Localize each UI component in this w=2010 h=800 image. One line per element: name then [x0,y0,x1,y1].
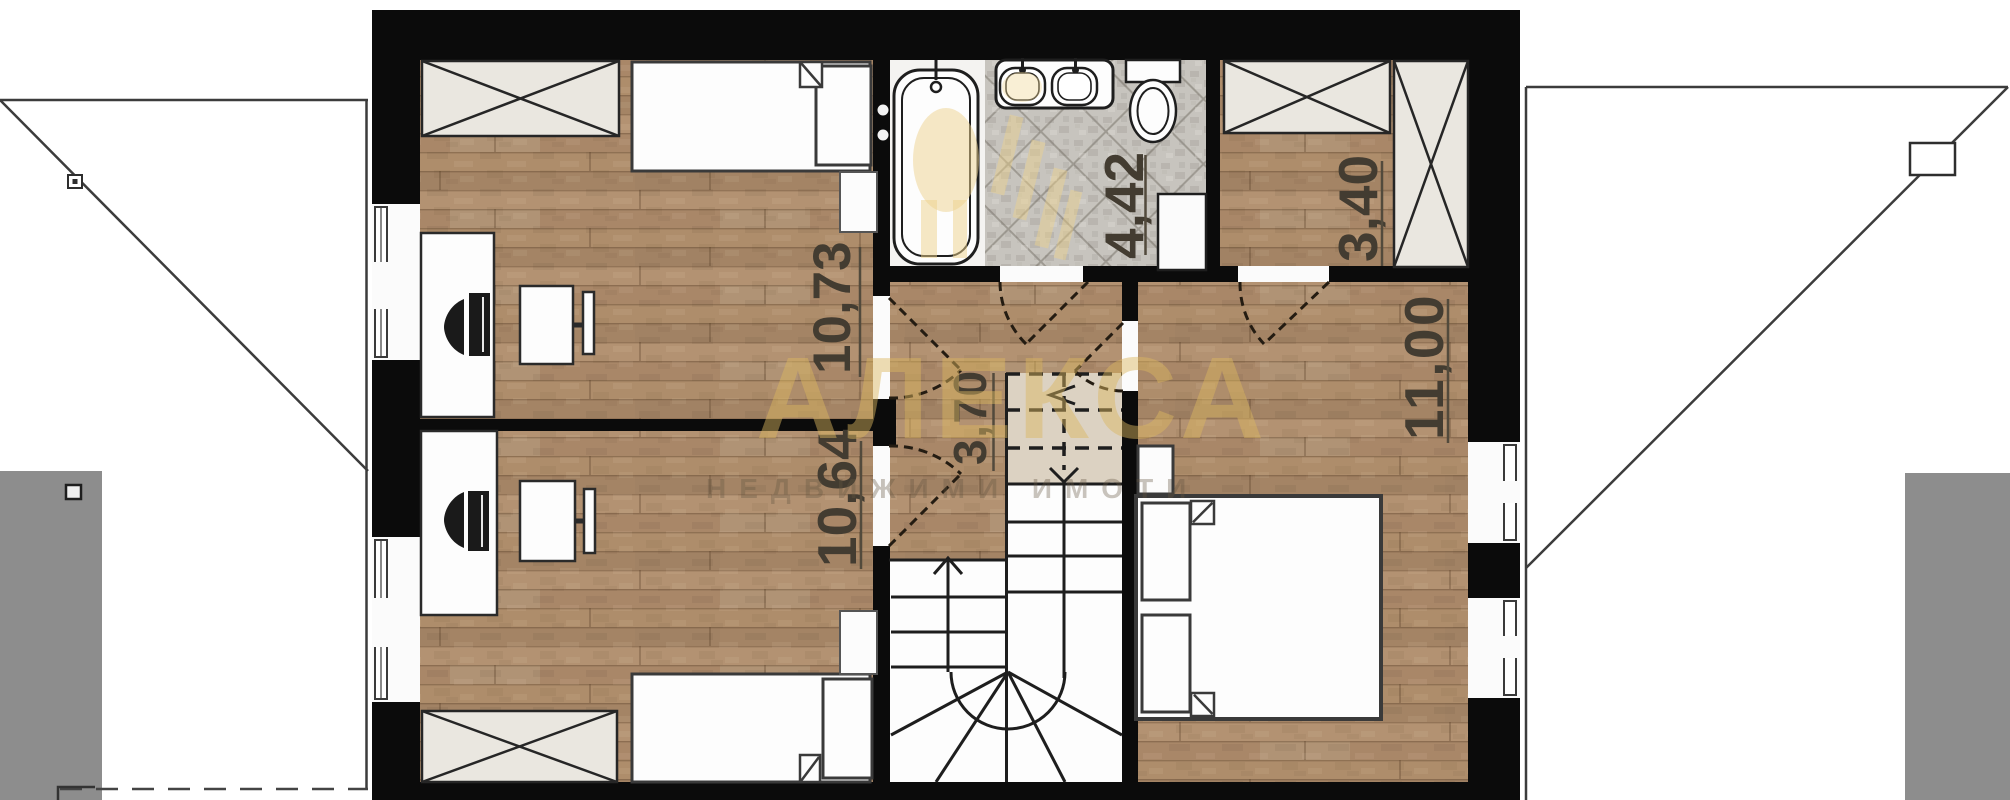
svg-text:НЕДВИЖИМИ ИМОТИ: НЕДВИЖИМИ ИМОТИ [706,473,1199,504]
svg-text:3,40: 3,40 [1327,155,1389,262]
svg-text:АЛЕКСА: АЛЕКСА [756,333,1270,463]
svg-text:11,00: 11,00 [1393,293,1455,440]
